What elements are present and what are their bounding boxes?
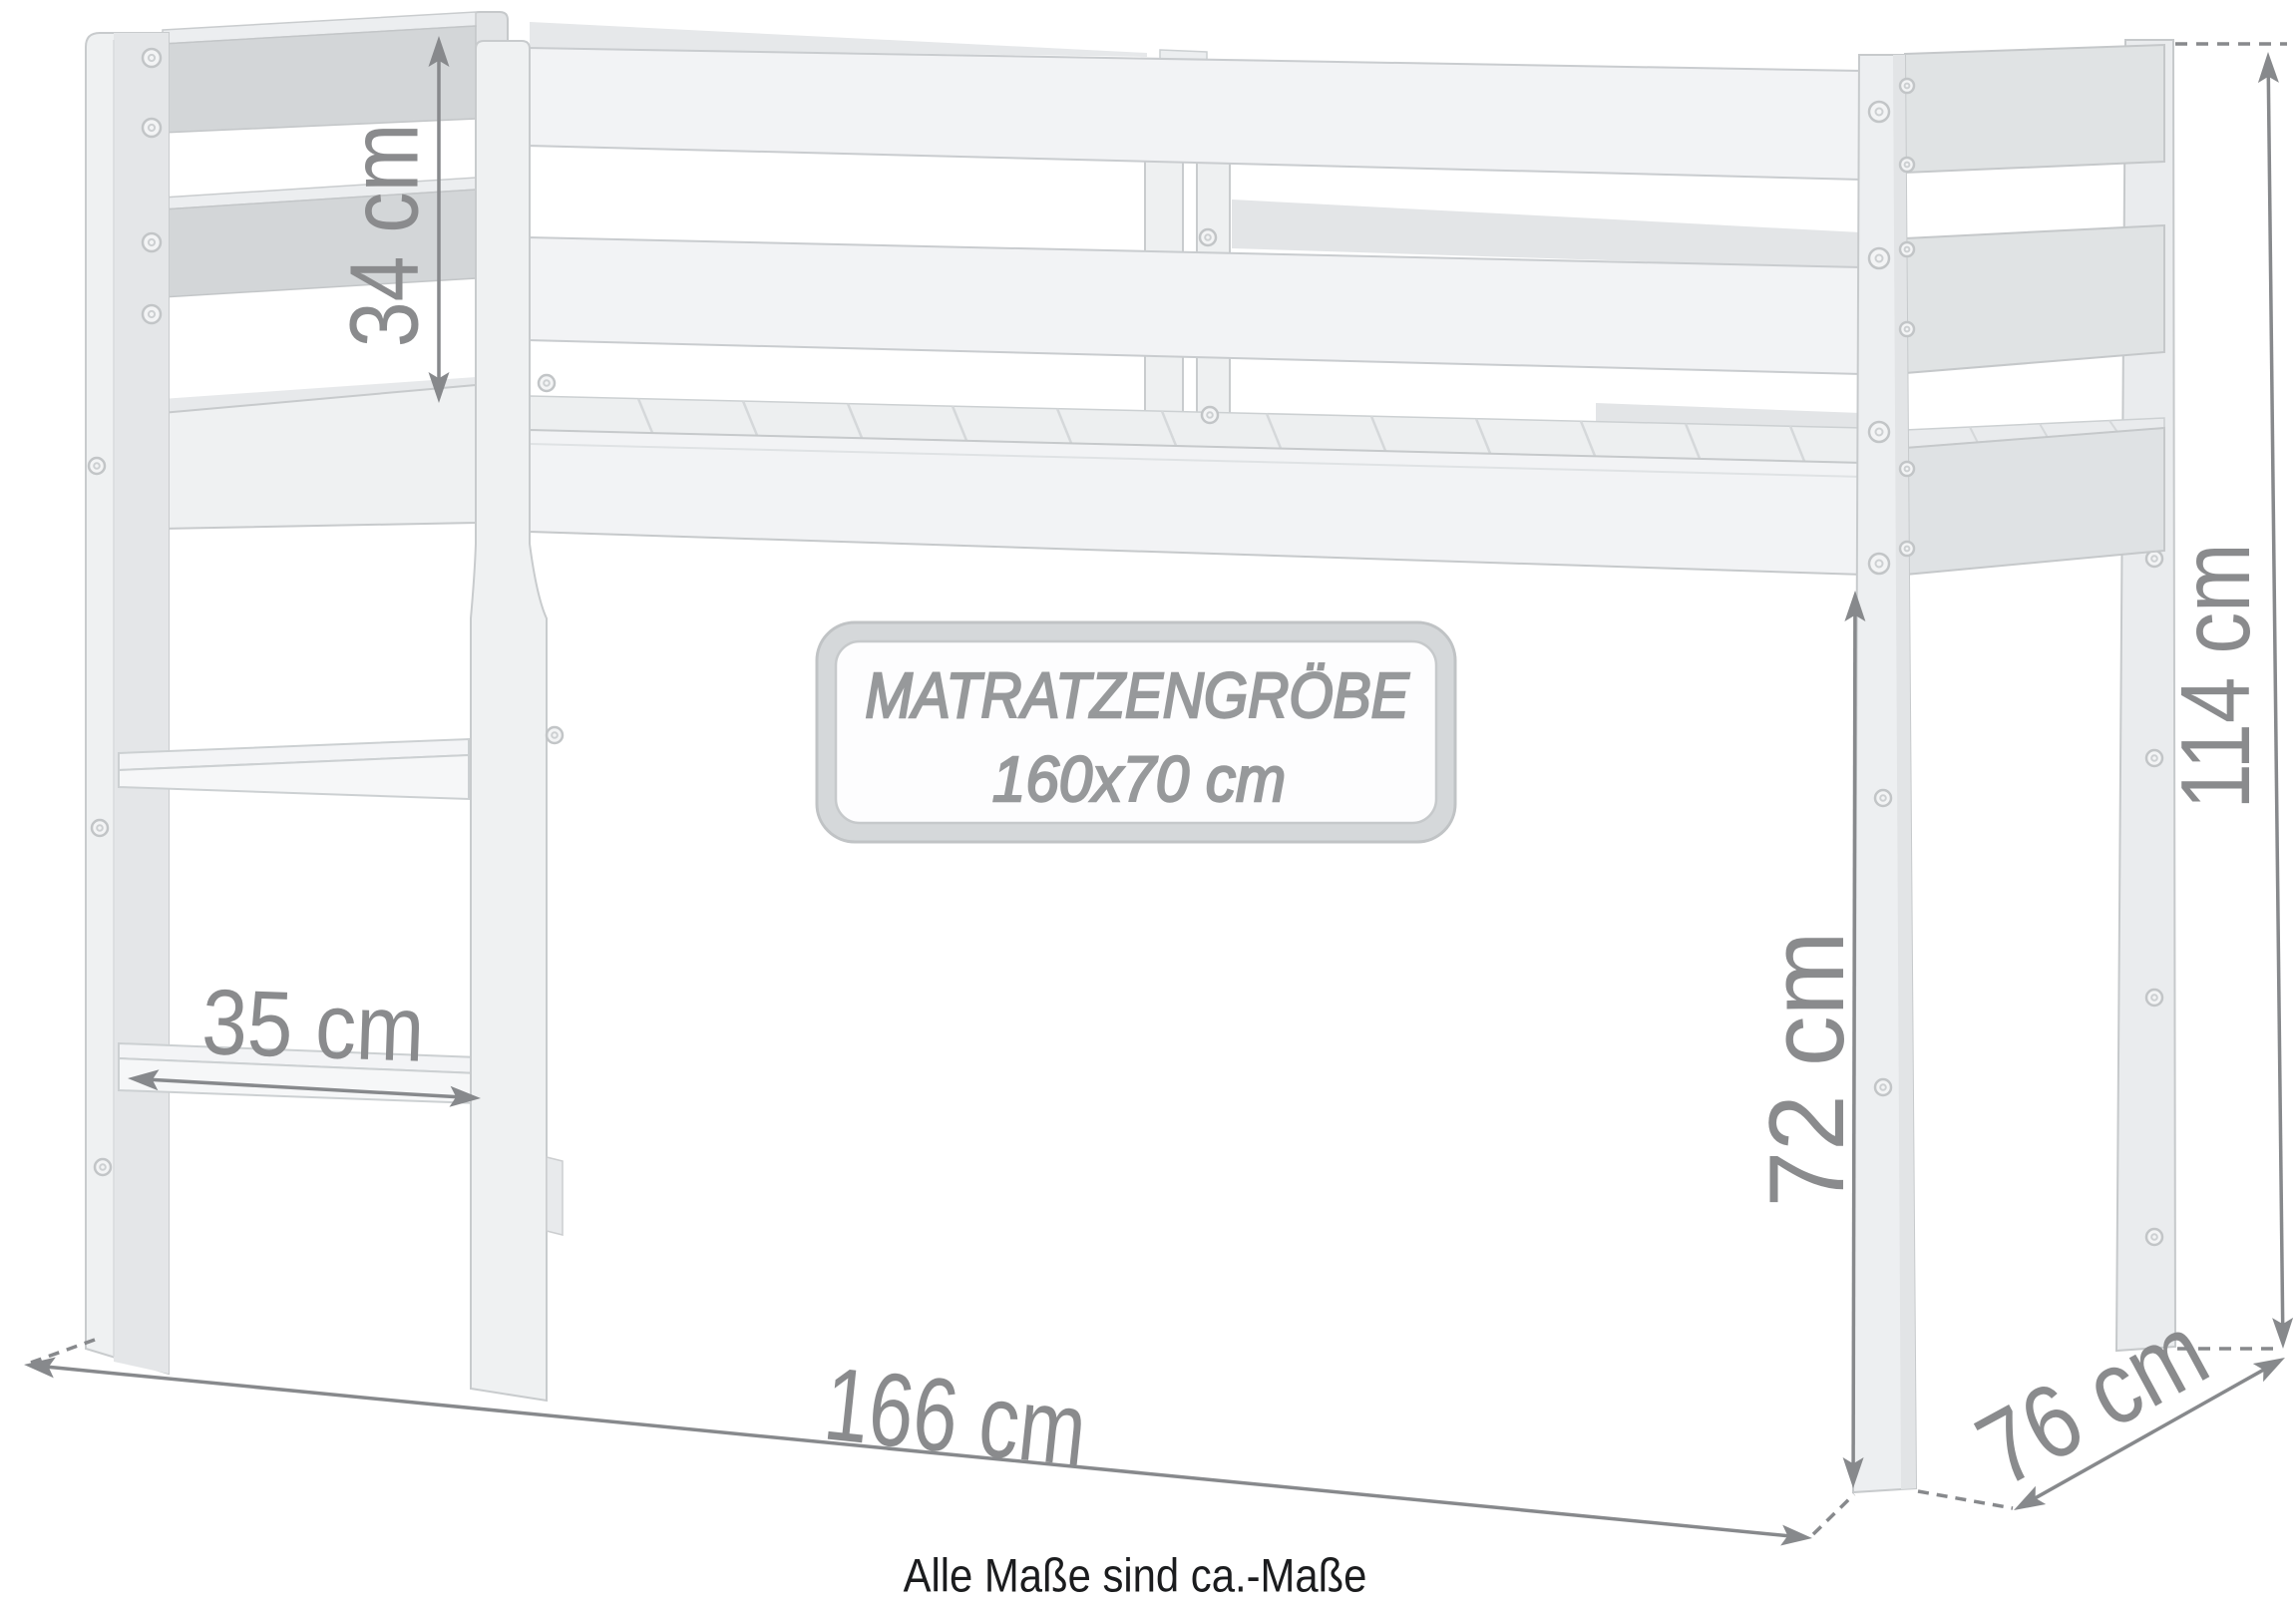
svg-text:35 cm: 35 cm <box>200 970 426 1081</box>
svg-text:72 cm: 72 cm <box>1748 932 1867 1208</box>
svg-text:34 cm: 34 cm <box>331 124 439 347</box>
svg-text:160x70 cm: 160x70 cm <box>992 744 1286 815</box>
svg-text:114 cm: 114 cm <box>2162 544 2271 810</box>
svg-text:MATRATZENGRÖBE: MATRATZENGRÖBE <box>865 659 1409 731</box>
svg-text:Alle Maße sind ca.-Maße: Alle Maße sind ca.-Maße <box>904 1550 1367 1602</box>
